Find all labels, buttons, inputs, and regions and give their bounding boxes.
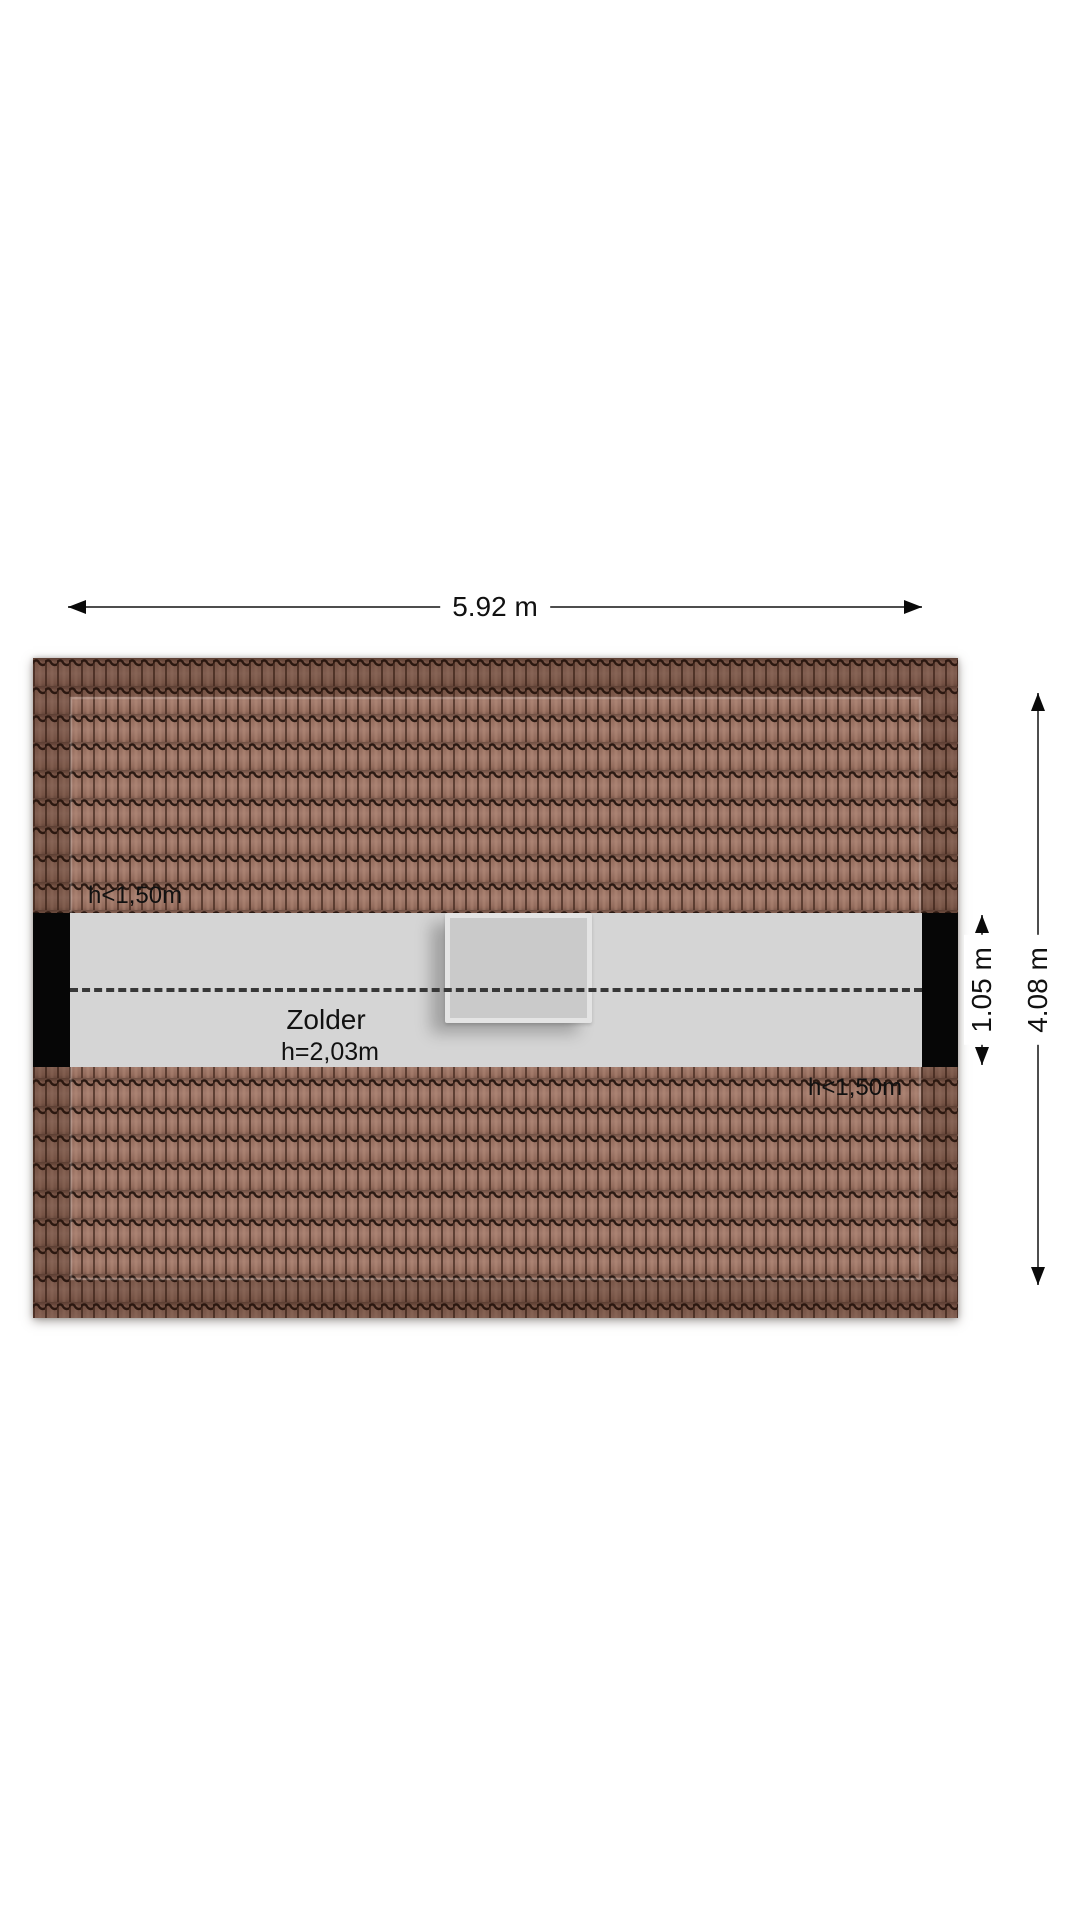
gable-wall-right <box>922 913 958 1067</box>
dimension-depth-label: 4.08 m <box>1020 935 1056 1045</box>
dimension-floor-strip-label: 1.05 m <box>964 935 1000 1045</box>
low-headroom-label-top: h<1,50m <box>88 882 182 910</box>
dimension-width-label: 5.92 m <box>440 589 550 625</box>
arrowhead-left-icon <box>68 600 86 614</box>
arrowhead-up-icon <box>975 915 989 933</box>
arrowhead-up-icon <box>1031 693 1045 711</box>
ridge-dashed-line <box>70 988 922 992</box>
floorplan-page: h<1,50m h<1,50m Zolder h=2,03m 5.92 m 1.… <box>0 0 1080 1920</box>
room-ceiling-height-label: h=2,03m <box>281 1038 379 1067</box>
room-label: Zolder <box>286 1004 365 1036</box>
arrowhead-down-icon <box>1031 1267 1045 1285</box>
low-headroom-label-bottom: h<1,50m <box>808 1074 902 1102</box>
arrowhead-down-icon <box>975 1047 989 1065</box>
arrowhead-right-icon <box>904 600 922 614</box>
floorplan-canvas: h<1,50m h<1,50m Zolder h=2,03m <box>33 658 958 1318</box>
skylight-window <box>445 913 592 1023</box>
gable-wall-left <box>33 913 70 1067</box>
